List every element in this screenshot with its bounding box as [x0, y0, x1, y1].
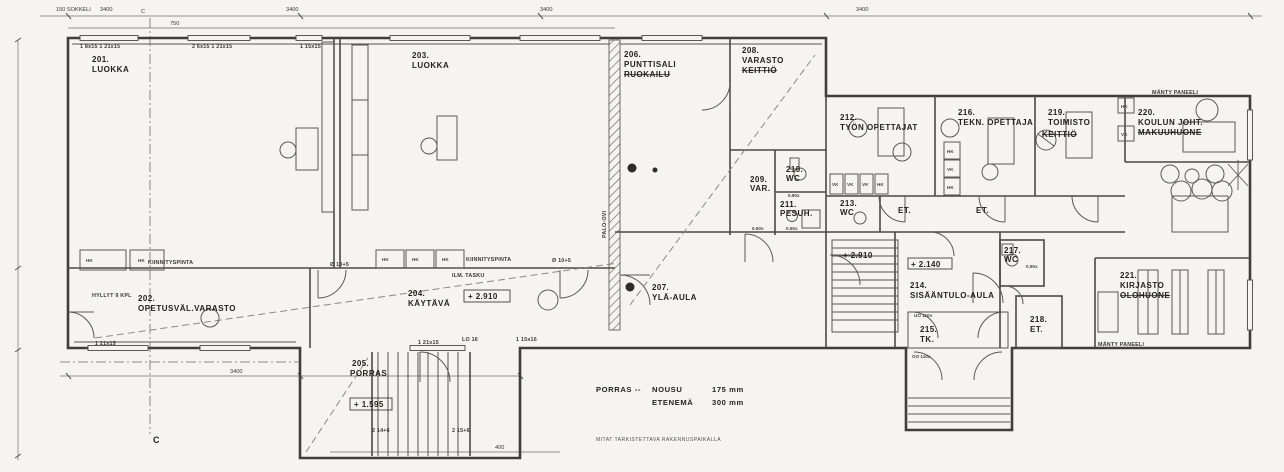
room-219-number: 219.: [1048, 108, 1065, 117]
window-code: 1 21x15: [418, 340, 439, 346]
room-216-number: 216.: [958, 108, 975, 117]
outer-walls: [68, 38, 1250, 458]
stair-note-rise-value: 175 mm: [712, 385, 744, 394]
locker-label: HK: [412, 257, 419, 262]
check-note: MITAT TARKISTETTAVA RAKENNUSPAIKALLA: [596, 437, 721, 443]
locker-label: VK: [847, 182, 854, 187]
room-204-number: 204.: [408, 289, 425, 298]
stair-note-run-label: ETENEMÄ: [652, 398, 693, 407]
stair-note-title: PORRAS --: [596, 385, 641, 394]
dim-top: 150 SOKKELI: [56, 7, 91, 13]
locker-label: VK: [947, 167, 954, 172]
window-code: 2 14+6: [372, 428, 390, 434]
room-205-name: PORRAS: [350, 369, 387, 378]
room-218-name: ET.: [1030, 325, 1043, 334]
room-209-number: 209.: [750, 175, 767, 184]
room-labels: 201. LUOKKA 202. OPETUSVÄL.VARASTO 203. …: [92, 46, 1203, 410]
room-208-name: VARASTO: [742, 56, 784, 65]
dim-top: 750: [170, 21, 179, 27]
corridor-et-label-2: ET.: [976, 206, 989, 215]
room-204-name: KÄYTÄVÄ: [408, 299, 450, 308]
notes: PORRAS -- NOUSU 175 mm ETENEMÄ 300 mm MI…: [596, 385, 744, 443]
locker-label: VK: [1121, 132, 1128, 137]
room-220-name-struck: MAKUUHUONE: [1138, 128, 1202, 137]
room-220-name: KOULUN JOHT.: [1138, 118, 1203, 127]
room-202-number: 202.: [138, 294, 155, 303]
room-202-name: OPETUSVÄL.VARASTO: [138, 304, 236, 313]
floorplan-scan: C C: [0, 0, 1284, 472]
mounting-surface-note: KIINNITYSPINTA: [148, 260, 193, 266]
door-width-note: 0.90x: [788, 193, 800, 198]
door-type-note: OO 110x: [912, 354, 931, 359]
room-206-name-struck: RUOKAILU: [624, 70, 670, 79]
stair-note-rise-label: NOUSU: [652, 385, 682, 394]
elevation-1595-stair: + 1.595: [354, 400, 384, 409]
room-214-name: SISÄÄNTULO-AULA: [910, 291, 994, 300]
door-size-note: Ø 10+5: [330, 262, 349, 268]
room-207-name: YLÄ-AULA: [652, 293, 697, 302]
windows: [80, 36, 1253, 351]
door-width-note: 0.60x: [786, 226, 798, 231]
dim-bottom: 400: [495, 445, 504, 451]
locker-label: HK: [138, 258, 145, 263]
elevation-2140-entry: + 2.140: [911, 260, 941, 269]
entrance-steps: [908, 398, 1010, 422]
room-219-name: TOIMISTO: [1048, 118, 1090, 127]
room-219-name-struck: KEITTIÖ: [1042, 130, 1077, 139]
mounting-surface-note: KIINNITYSPINTA: [466, 257, 511, 263]
section-marker-bottom: C: [153, 435, 160, 445]
room-203-name: LUOKKA: [412, 61, 449, 70]
door-width-note: 0.60x: [752, 226, 764, 231]
pine-panel-note: MÄNTY PANEELI: [1098, 341, 1144, 348]
room-216-name: TEKN. OPETTAJA: [958, 118, 1033, 127]
room-210-name: WC: [786, 174, 800, 183]
small-annotations: 1 8x15 1 21x15 2 6x15 1 21x15 1 15x15 1 …: [80, 44, 1198, 434]
shelf-note: HYLLYT 9 KPL: [92, 293, 132, 299]
room-213-number: 213.: [840, 199, 857, 208]
door-width-note: 0.90x: [1026, 264, 1038, 269]
door-type-note: UO 110x: [914, 313, 933, 318]
room-206-number: 206.: [624, 50, 641, 59]
section-line-c: C C: [141, 9, 160, 445]
fire-door-note: PALO-OVI: [602, 210, 608, 238]
room-215-number: 215.: [920, 325, 937, 334]
pine-panel-note: MÄNTY PANEELI: [1152, 89, 1198, 96]
window-code: 1 15x16: [516, 337, 537, 343]
corridor-et-label-1: ET.: [898, 206, 911, 215]
air-pocket-note: ILM. TASKU: [452, 273, 484, 279]
window-code: 1 21x15: [95, 341, 116, 347]
section-marker-top: C: [141, 9, 145, 15]
room-210-number: 210.: [786, 165, 803, 174]
room-221-name-struck: OLOHUONE: [1120, 291, 1170, 300]
door-starburst: [1228, 160, 1248, 190]
window-code: 2 6x15 1 21x15: [192, 44, 232, 50]
locker-label: HK: [1121, 104, 1128, 109]
locker-label: HK: [442, 257, 449, 262]
room-213-name: WC: [840, 208, 854, 217]
room-215-name: TK.: [920, 335, 934, 344]
floorplan-svg: C C: [0, 0, 1284, 472]
window-code: 1 15x15: [300, 44, 321, 50]
window-code: LO 16: [462, 337, 478, 343]
room-206-name: PUNTTISALI: [624, 60, 676, 69]
room-217-name: WC: [1004, 255, 1018, 264]
locker-label: HK: [86, 258, 93, 263]
locker-label: HK: [947, 185, 954, 190]
room-205-number: 205.: [352, 359, 369, 368]
fire-wall-hatched: [609, 40, 620, 330]
door-size-note: Ø 10+5: [552, 258, 571, 264]
room-201-number: 201.: [92, 55, 109, 64]
room-208-number: 208.: [742, 46, 759, 55]
room-211-number: 211.: [780, 200, 797, 209]
room-211-name: PESUH.: [780, 209, 813, 218]
room-221-name: KIRJASTO: [1120, 281, 1164, 290]
revision-dash-lines: [60, 55, 815, 362]
dim-top: 3400: [540, 7, 552, 13]
room-220-number: 220.: [1138, 108, 1155, 117]
window-code: 2 15+6: [452, 428, 470, 434]
locker-label: HK: [947, 149, 954, 154]
room-208-name-struck: KEITTIÖ: [742, 66, 777, 75]
room-212-name: TYÖN OPETTAJAT: [840, 123, 918, 132]
elevation-2910-aula: + 2.910: [843, 251, 873, 260]
window-code: 1 8x15 1 21x15: [80, 44, 120, 50]
room-218-number: 218.: [1030, 315, 1047, 324]
room-212-number: 212.: [840, 113, 857, 122]
room-221-number: 221.: [1120, 271, 1137, 280]
room-201-name: LUOKKA: [92, 65, 129, 74]
locker-label: HK: [382, 257, 389, 262]
dim-top: 3400: [100, 7, 112, 13]
dim-top: 3400: [286, 7, 298, 13]
locker-label: VK: [832, 182, 839, 187]
dim-bottom: 3400: [230, 369, 242, 375]
elevation-2910-corridor: + 2.910: [468, 292, 498, 301]
room-203-number: 203.: [412, 51, 429, 60]
locker-label: HK: [877, 182, 884, 187]
room-207-number: 207.: [652, 283, 669, 292]
room-214-number: 214.: [910, 281, 927, 290]
room-209-name: VAR.: [750, 184, 771, 193]
stair-205: [306, 352, 470, 456]
stair-note-run-value: 300 mm: [712, 398, 744, 407]
dim-top: 3400: [856, 7, 868, 13]
furniture: [201, 42, 1235, 334]
locker-label: VK: [862, 182, 869, 187]
room-217-number: 217.: [1004, 246, 1021, 255]
